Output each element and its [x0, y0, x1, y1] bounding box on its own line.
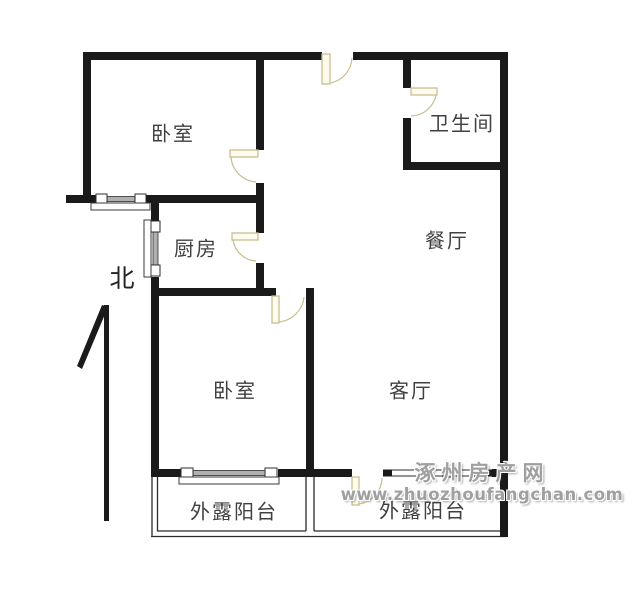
- north-label: 北: [109, 259, 134, 295]
- wall-segment: [151, 276, 159, 477]
- watermark-site-url: www.zhuozhoufangchan.com: [341, 487, 624, 502]
- room-label-kitchen: 厨房: [174, 233, 218, 262]
- window-bedroom-2: [179, 468, 279, 484]
- watermark: 涿州房产网 www.zhuozhoufangchan.com: [341, 461, 624, 502]
- north-arrow-head: [77, 305, 108, 369]
- north-arrow-shaft: [104, 305, 109, 521]
- room-label-bedroom-2: 卧室: [213, 375, 257, 404]
- window-glass: [153, 232, 158, 265]
- window-bedroom-1: [91, 194, 150, 210]
- wall-segment: [83, 52, 322, 60]
- door-swing-arc: [279, 297, 304, 322]
- door-leaf: [322, 54, 330, 84]
- room-label-living-room: 客厅: [389, 375, 433, 404]
- north-arrow: [77, 305, 109, 521]
- door-swing-arc: [233, 240, 256, 261]
- wall-segment: [306, 288, 314, 477]
- wall-segment: [256, 52, 264, 150]
- watermark-site-name: 涿州房产网: [341, 461, 624, 485]
- window-sill: [144, 220, 151, 277]
- door-bedroom-2: [272, 296, 304, 323]
- wall-segment: [403, 118, 411, 170]
- door-entrance: [322, 54, 352, 84]
- window-sill: [179, 477, 279, 484]
- door-leaf: [230, 150, 258, 157]
- floor-plan: 卧室 卫生间 厨房 餐厅 卧室 客厅 外露阳台 外露阳台 北 涿州房产网 www…: [0, 0, 636, 600]
- window-glass: [107, 197, 135, 202]
- door-swing-arc: [331, 58, 352, 83]
- door-bedroom-1: [230, 150, 258, 182]
- room-label-bedroom-1: 卧室: [151, 118, 195, 147]
- room-label-bathroom: 卫生间: [429, 108, 495, 137]
- door-leaf: [411, 88, 437, 95]
- window-sill: [91, 203, 150, 210]
- wall-segment: [256, 263, 264, 296]
- door-leaf: [232, 233, 258, 240]
- window-glass: [193, 471, 265, 476]
- room-label-dining-room: 餐厅: [425, 225, 469, 254]
- window-kitchen: [144, 220, 160, 277]
- wall-segment: [353, 52, 508, 60]
- door-kitchen: [232, 233, 258, 261]
- wall-segment: [151, 195, 159, 222]
- floor-plan-drawing: [0, 0, 636, 600]
- door-leaf: [272, 296, 279, 323]
- door-swing-arc: [231, 157, 256, 182]
- wall-segment: [83, 52, 91, 203]
- wall-segment: [403, 52, 411, 88]
- wall-segment: [403, 162, 508, 170]
- room-label-balcony-left: 外露阳台: [190, 496, 278, 525]
- wall-segment: [256, 183, 264, 233]
